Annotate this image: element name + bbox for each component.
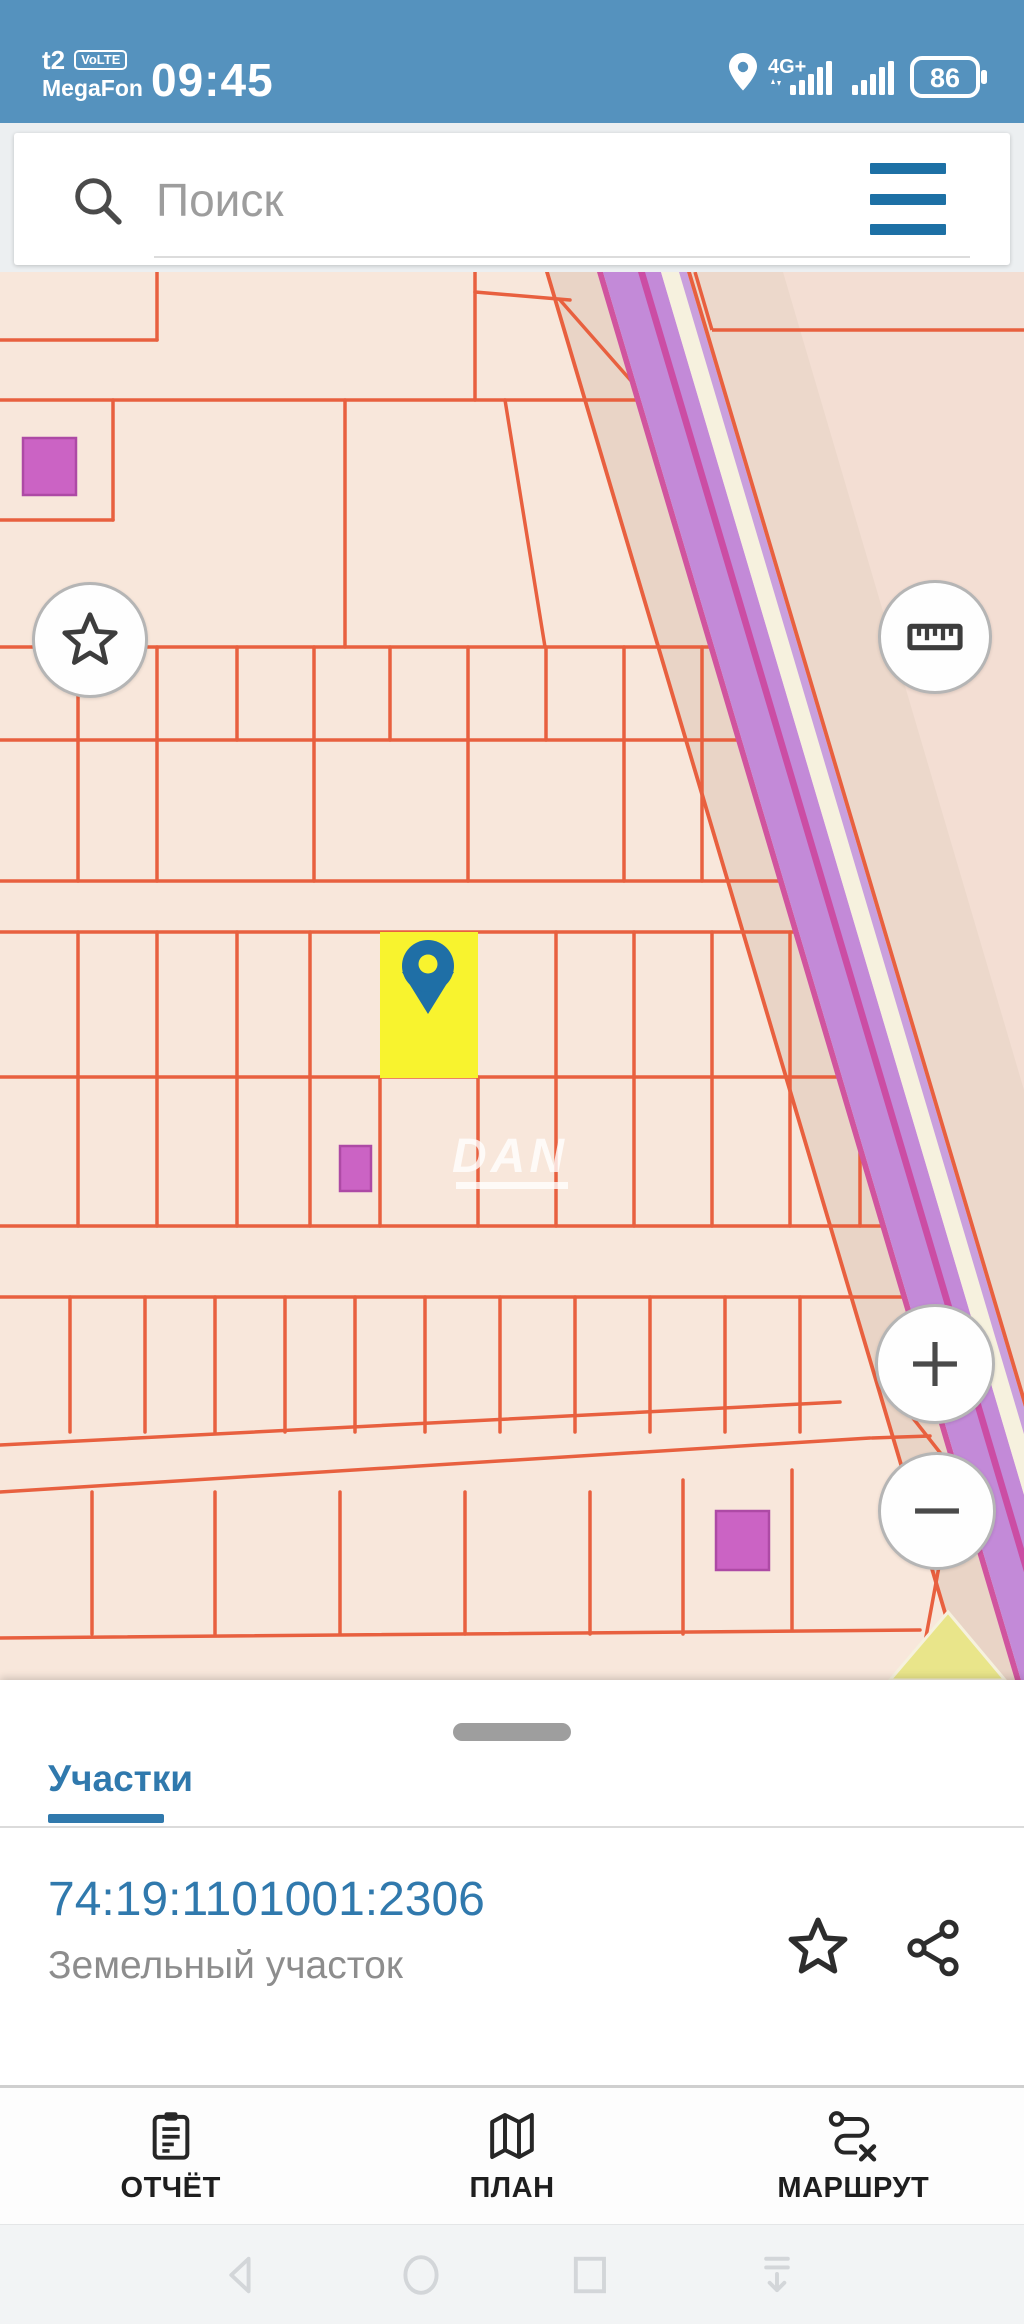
collapse-arrow-icon (751, 2249, 803, 2301)
ruler-icon (903, 605, 967, 669)
highlighted-parcel-square (340, 1146, 371, 1191)
search-bar: Поиск (14, 133, 1010, 265)
share-button[interactable] (901, 1916, 965, 1980)
status-icons: 4G+ 86 (722, 50, 990, 102)
tab-indicator (48, 1814, 164, 1823)
home-icon (395, 2249, 447, 2301)
map-container: DAN (0, 272, 1024, 1680)
share-icon (901, 1916, 965, 1980)
highlighted-parcel-square (716, 1511, 769, 1570)
location-icon (729, 53, 757, 91)
android-recents-button[interactable] (565, 2249, 617, 2301)
battery-percent: 86 (930, 63, 960, 93)
android-nav-bar (0, 2224, 1024, 2324)
map-watermark: DAN (452, 1130, 568, 1183)
android-home-button[interactable] (395, 2249, 447, 2301)
svg-text:4G+: 4G+ (768, 56, 806, 78)
plan-button[interactable]: ПЛАН (341, 2088, 682, 2224)
bottom-sheet: Участки 74:19:1101001:2306 Земельный уча… (0, 1680, 1024, 2088)
tab-parcels[interactable]: Участки (48, 1758, 193, 1800)
favorite-parcel-button[interactable] (783, 1912, 853, 1982)
carrier-badge: t2 (42, 47, 65, 73)
zoom-out-button[interactable] (878, 1452, 996, 1570)
battery-icon: 86 (912, 58, 987, 96)
map-icon (484, 2108, 540, 2164)
search-icon (68, 171, 126, 229)
plan-label: ПЛАН (469, 2172, 554, 2205)
plus-icon (904, 1333, 966, 1395)
star-icon (65, 615, 116, 663)
signal-bars-secondary-icon (852, 61, 894, 95)
route-button[interactable]: МАРШРУТ (683, 2088, 1024, 2224)
cadastral-map[interactable]: DAN (0, 272, 1024, 1680)
report-button[interactable]: ОТЧЁТ (0, 2088, 341, 2224)
volte-badge: VoLTE (74, 50, 127, 70)
carrier-name: MegaFon (42, 77, 143, 100)
parcel-number-link[interactable]: 74:19:1101001:2306 (48, 1872, 485, 1927)
clipboard-icon (143, 2108, 199, 2164)
report-label: ОТЧЁТ (121, 2172, 221, 2205)
recents-icon (565, 2249, 617, 2301)
route-label: МАРШРУТ (777, 2172, 929, 2205)
bottom-nav: ОТЧЁТ ПЛАН МАРШРУТ (0, 2088, 1024, 2224)
android-back-button[interactable] (215, 2249, 267, 2301)
star-icon (783, 1912, 853, 1982)
search-input[interactable]: Поиск (156, 173, 283, 227)
clock: 09:45 (151, 53, 274, 107)
favorites-button[interactable] (32, 582, 148, 698)
status-bar: t2 VoLTE MegaFon 09:45 4G+ (0, 0, 1024, 123)
sheet-divider (0, 1826, 1024, 1828)
phone-screen: t2 VoLTE MegaFon 09:45 4G+ (0, 0, 1024, 2324)
sheet-drag-handle[interactable] (453, 1723, 571, 1741)
measure-button[interactable] (878, 580, 992, 694)
hide-panel-button[interactable] (751, 2249, 803, 2301)
carrier-block: t2 VoLTE MegaFon (42, 48, 143, 100)
back-icon (215, 2249, 267, 2301)
parcel-type-label: Земельный участок (48, 1944, 403, 1988)
search-underline (154, 256, 970, 258)
minus-icon (906, 1480, 968, 1542)
route-icon (825, 2108, 881, 2164)
highlighted-parcel-square (23, 438, 76, 495)
zoom-in-button[interactable] (875, 1304, 995, 1424)
menu-button[interactable] (870, 163, 946, 235)
